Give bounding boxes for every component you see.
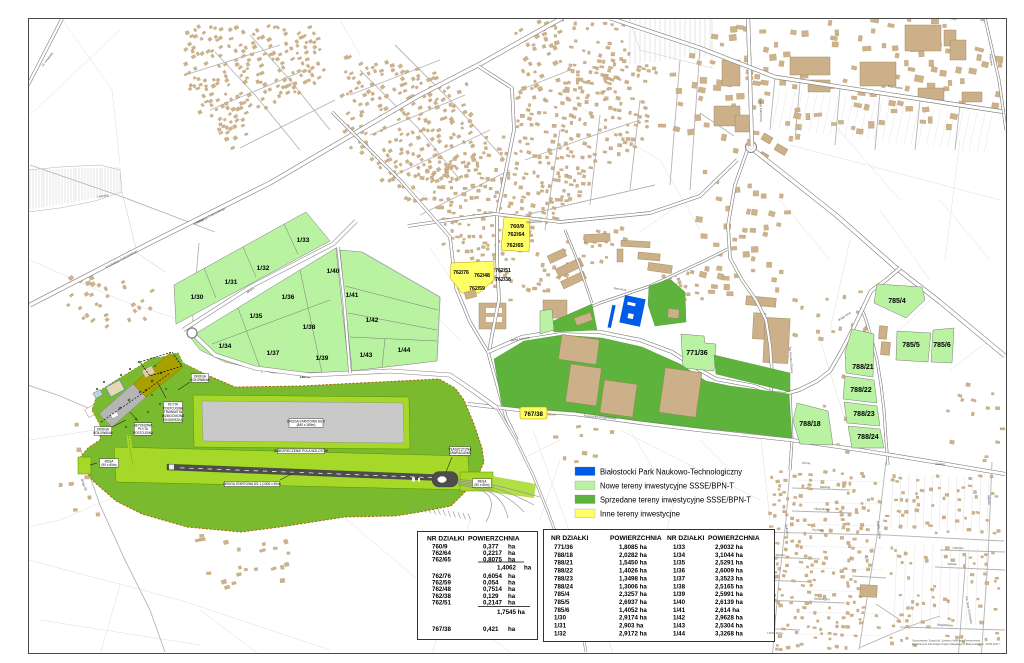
svg-text:1,3498 ha: 1,3498 ha [619, 575, 647, 582]
svg-text:(90 x 60m): (90 x 60m) [101, 463, 116, 467]
svg-text:2,6139 ha: 2,6139 ha [715, 599, 743, 606]
svg-text:1/39: 1/39 [673, 591, 686, 598]
svg-text:788/23: 788/23 [554, 575, 573, 582]
svg-text:2,5291 ha: 2,5291 ha [715, 560, 743, 567]
svg-text:771/36: 771/36 [686, 350, 708, 357]
svg-text:DROGA STARTOWA DS-1 (1300 x 30: DROGA STARTOWA DS-1 (1300 x 30m) [223, 482, 281, 486]
svg-text:1/39: 1/39 [316, 355, 329, 362]
svg-text:2,3257 ha: 2,3257 ha [619, 591, 647, 598]
svg-text:785/4: 785/4 [888, 298, 906, 305]
svg-text:POWIERZCHNIA: POWIERZCHNIA [468, 536, 520, 543]
svg-text:ha: ha [508, 626, 516, 633]
svg-text:NR DZIAŁKI: NR DZIAŁKI [551, 535, 589, 542]
svg-text:2,6009 ha: 2,6009 ha [715, 568, 743, 575]
svg-text:1/41: 1/41 [346, 292, 359, 299]
svg-text:Milowa: Milowa [987, 495, 992, 505]
svg-text:788/22: 788/22 [850, 387, 872, 394]
svg-text:0,8075: 0,8075 [483, 557, 502, 564]
svg-text:2,9628 ha: 2,9628 ha [715, 615, 743, 622]
svg-text:Nagietkowa: Nagietkowa [937, 623, 953, 628]
svg-text:1/34: 1/34 [673, 552, 686, 559]
svg-text:2,9174 ha: 2,9174 ha [619, 615, 647, 622]
svg-text:1/43: 1/43 [360, 352, 373, 359]
svg-text:3,1044 ha: 3,1044 ha [715, 552, 743, 559]
svg-text:2,903 ha: 2,903 ha [619, 623, 644, 630]
svg-text:NR DZIAŁKI: NR DZIAŁKI [427, 536, 465, 543]
svg-text:762/38: 762/38 [495, 277, 511, 283]
svg-text:2,9172 ha: 2,9172 ha [619, 630, 647, 637]
svg-text:1/36: 1/36 [673, 568, 686, 575]
svg-text:Astrów: Astrów [947, 562, 957, 567]
svg-text:762/76: 762/76 [453, 270, 469, 276]
svg-text:NR DZIAŁKI: NR DZIAŁKI [667, 535, 705, 542]
svg-text:3,3523 ha: 3,3523 ha [715, 575, 743, 582]
svg-text:(90 x 60m): (90 x 60m) [474, 483, 489, 487]
svg-text:760/9: 760/9 [510, 224, 524, 230]
svg-text:Ostróżki: Ostróżki [952, 546, 963, 550]
svg-text:1,7545 ha: 1,7545 ha [497, 609, 525, 616]
svg-text:1/31: 1/31 [225, 279, 238, 286]
svg-text:ZABEZPIECZENIE POLA WZLOTÓW: ZABEZPIECZENIE POLA WZLOTÓW [274, 448, 328, 453]
svg-text:1/32: 1/32 [257, 265, 270, 272]
svg-text:POSTOJOWA: POSTOJOWA [133, 431, 154, 435]
svg-text:1/37: 1/37 [673, 575, 686, 582]
svg-text:1/42: 1/42 [366, 317, 379, 324]
svg-text:1/40: 1/40 [327, 268, 340, 275]
svg-text:785/5: 785/5 [902, 342, 920, 349]
svg-text:Leśne Echa: Leśne Echa [767, 631, 783, 636]
svg-text:Hiacyntowa: Hiacyntowa [814, 507, 830, 512]
svg-text:1,4062: 1,4062 [497, 565, 516, 572]
svg-text:Górna: Górna [802, 461, 811, 465]
svg-text:1/44: 1/44 [673, 630, 686, 637]
svg-text:1,8085 ha: 1,8085 ha [619, 544, 647, 551]
svg-text:785/4: 785/4 [554, 591, 570, 598]
svg-text:2,9032 ha: 2,9032 ha [715, 544, 743, 551]
svg-text:1/38: 1/38 [673, 583, 686, 590]
svg-text:2,6937 ha: 2,6937 ha [619, 599, 647, 606]
svg-text:2,614 ha: 2,614 ha [715, 607, 740, 614]
svg-text:1/33: 1/33 [297, 237, 310, 244]
svg-text:788/22: 788/22 [554, 568, 573, 575]
svg-text:1,4026 ha: 1,4026 ha [619, 568, 647, 575]
svg-text:762/51: 762/51 [495, 268, 511, 274]
svg-text:1/33: 1/33 [673, 544, 686, 551]
svg-text:2,5991 ha: 2,5991 ha [715, 591, 743, 598]
svg-text:788/23: 788/23 [853, 411, 875, 418]
svg-text:762/65: 762/65 [506, 243, 523, 249]
svg-text:1,5450 ha: 1,5450 ha [619, 560, 647, 567]
svg-text:ha: ha [508, 557, 516, 564]
svg-text:Sikorki: Sikorki [775, 553, 784, 557]
svg-text:Opracowanie: Zespół ds. System: Opracowanie: Zespół ds. Systemu Informac… [912, 639, 980, 643]
svg-text:2,5165 ha: 2,5165 ha [715, 583, 743, 590]
svg-text:788/18: 788/18 [554, 552, 573, 559]
svg-text:Sprzedane tereny inwestycyjne: Sprzedane tereny inwestycyjne SSSE/BPN-T [600, 496, 751, 505]
svg-text:788/21: 788/21 [554, 560, 573, 567]
svg-text:Departament Informatyki Urzędu: Departament Informatyki Urzędu Miejskieg… [912, 642, 1001, 646]
svg-text:785/6: 785/6 [554, 607, 570, 614]
svg-text:ha: ha [524, 565, 532, 572]
svg-text:EKOKRATKĄ: EKOKRATKĄ [163, 418, 183, 422]
svg-text:Edukacyjna: Edukacyjna [814, 597, 830, 602]
svg-text:ha: ha [508, 599, 516, 606]
svg-text:Zalesie: Zalesie [935, 462, 945, 467]
svg-text:1/30: 1/30 [191, 294, 204, 301]
svg-text:1/31: 1/31 [554, 623, 567, 630]
svg-text:ZAWRACANIA: ZAWRACANIA [449, 451, 471, 455]
svg-text:1/43: 1/43 [673, 623, 686, 630]
svg-text:Dojlidy Fabryczne: Dojlidy Fabryczne [759, 98, 764, 122]
svg-text:1/35: 1/35 [673, 560, 686, 567]
svg-text:1/30: 1/30 [554, 615, 567, 622]
svg-text:788/24: 788/24 [554, 583, 573, 590]
svg-text:762/59: 762/59 [469, 286, 485, 292]
svg-text:3,3268 ha: 3,3268 ha [715, 630, 743, 637]
svg-text:KOŁOWANIA: KOŁOWANIA [190, 378, 210, 382]
svg-text:Inne tereny inwestycjne: Inne tereny inwestycjne [600, 510, 681, 519]
svg-text:767/38: 767/38 [432, 626, 451, 633]
svg-text:788/21: 788/21 [852, 364, 874, 371]
svg-text:Nowe tereny inwestycyjne SSSE/: Nowe tereny inwestycyjne SSSE/BPN-T [600, 482, 734, 491]
svg-text:Macieja: Macieja [820, 485, 831, 489]
svg-text:0,2147: 0,2147 [483, 599, 502, 606]
svg-text:1/37: 1/37 [267, 350, 280, 357]
svg-text:762/48: 762/48 [474, 273, 490, 279]
svg-text:1/35: 1/35 [250, 313, 263, 320]
svg-text:1/36: 1/36 [282, 294, 295, 301]
svg-text:1/40: 1/40 [673, 599, 686, 606]
svg-text:767/38: 767/38 [524, 411, 543, 418]
svg-text:762/51: 762/51 [432, 599, 451, 606]
svg-text:Krynicza: Krynicza [812, 528, 824, 532]
svg-text:(840 x 180m): (840 x 180m) [297, 423, 316, 427]
svg-text:785/5: 785/5 [554, 599, 570, 606]
svg-text:1/42: 1/42 [673, 615, 686, 622]
svg-text:POWIERZCHNIA: POWIERZCHNIA [610, 535, 662, 542]
svg-text:Wiewiórcza: Wiewiórcza [526, 220, 542, 225]
svg-text:1/34: 1/34 [219, 343, 232, 350]
svg-text:785/6: 785/6 [933, 342, 951, 349]
svg-text:2,5304 ha: 2,5304 ha [715, 623, 743, 630]
svg-text:771/36: 771/36 [554, 544, 573, 551]
svg-text:762/65: 762/65 [432, 557, 451, 564]
svg-text:788/18: 788/18 [799, 421, 821, 428]
svg-text:1,3006 ha: 1,3006 ha [619, 583, 647, 590]
svg-text:Białostocki Park Naukowo-Techn: Białostocki Park Naukowo-Technologiczny [600, 468, 742, 477]
svg-text:1,4052 ha: 1,4052 ha [619, 607, 647, 614]
svg-text:788/24: 788/24 [857, 434, 879, 441]
svg-text:762/64: 762/64 [507, 232, 525, 238]
svg-text:2,0282 ha: 2,0282 ha [619, 552, 647, 559]
svg-text:KOŁOWANIA: KOŁOWANIA [93, 431, 113, 435]
svg-text:0,421: 0,421 [483, 626, 499, 633]
svg-text:1/32: 1/32 [554, 630, 567, 637]
svg-text:POWIERZCHNIA: POWIERZCHNIA [708, 535, 760, 542]
svg-text:1/38: 1/38 [303, 324, 316, 331]
svg-text:1/44: 1/44 [398, 347, 411, 354]
svg-text:1/41: 1/41 [673, 607, 686, 614]
